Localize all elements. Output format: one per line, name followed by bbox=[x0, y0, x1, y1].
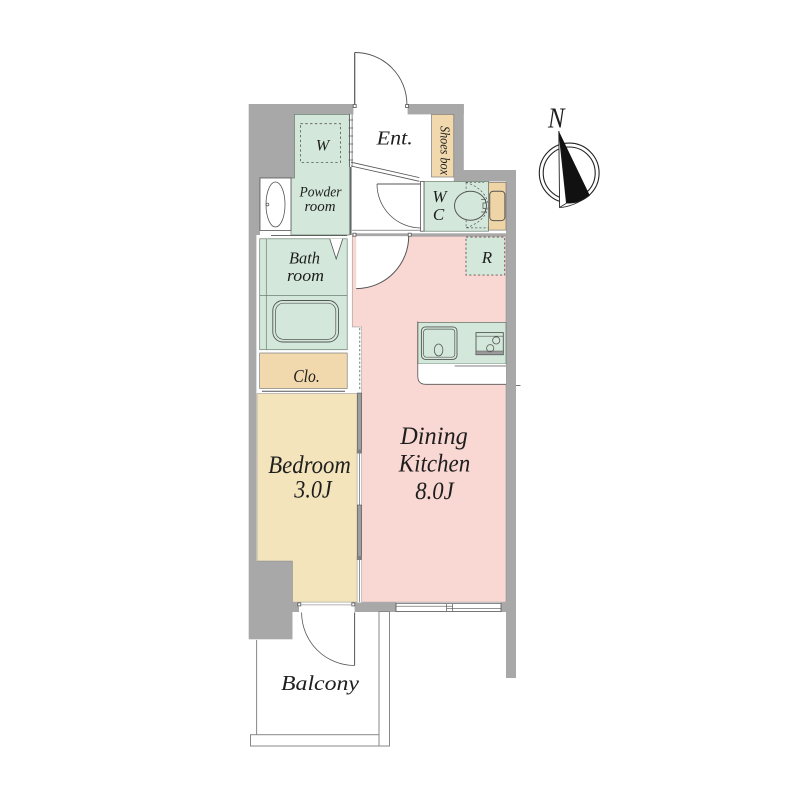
svg-text:room: room bbox=[287, 266, 324, 285]
svg-text:N: N bbox=[547, 103, 566, 134]
svg-text:Kitchen: Kitchen bbox=[398, 448, 470, 477]
svg-text:Clo.: Clo. bbox=[293, 366, 320, 386]
svg-text:Ent.: Ent. bbox=[376, 128, 413, 150]
svg-text:8.0J: 8.0J bbox=[415, 476, 455, 505]
svg-text:W: W bbox=[316, 137, 331, 154]
svg-text:C: C bbox=[433, 205, 445, 224]
svg-text:W: W bbox=[432, 187, 448, 206]
svg-text:Dining: Dining bbox=[399, 421, 467, 450]
svg-text:R: R bbox=[481, 248, 493, 267]
svg-text:Bath: Bath bbox=[289, 249, 320, 268]
svg-text:Balcony: Balcony bbox=[281, 671, 359, 695]
svg-text:room: room bbox=[305, 199, 336, 215]
svg-text:Shoes box: Shoes box bbox=[437, 126, 452, 176]
svg-text:3.0J: 3.0J bbox=[293, 475, 333, 504]
